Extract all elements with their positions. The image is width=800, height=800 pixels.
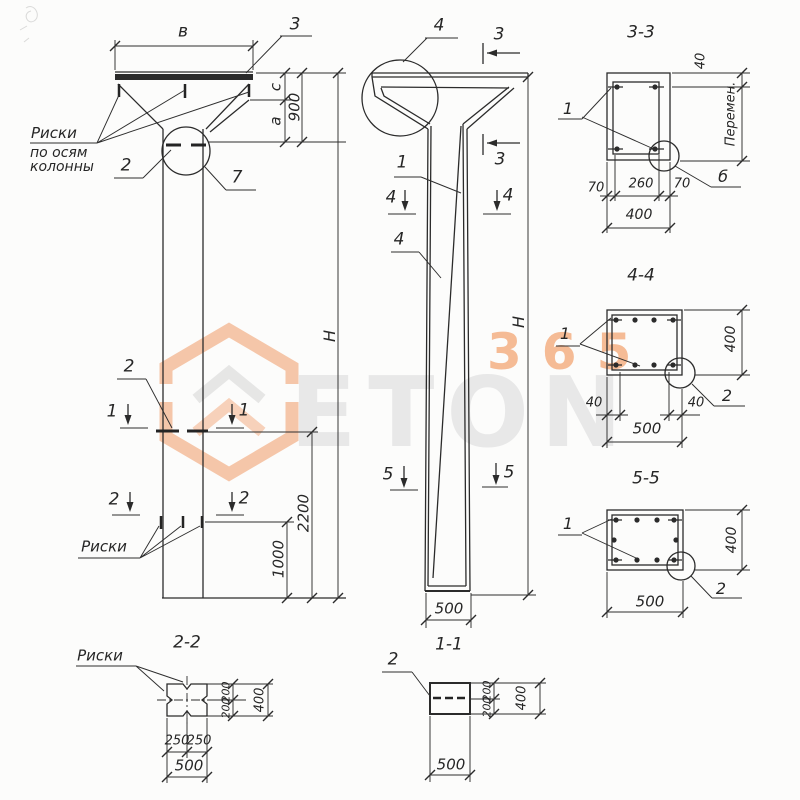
side-dim-H: Н <box>511 316 527 328</box>
side-callout-4-web: 4 <box>394 232 405 249</box>
sec22-dim-250-right: 250 <box>187 735 212 748</box>
front-callout-2-top: 2 <box>121 158 132 175</box>
sec44-callout-1: 1 <box>560 326 570 342</box>
sec44-callout-2: 2 <box>722 388 732 404</box>
side-elevation-view <box>362 38 536 628</box>
side-marker-5-left: 5 <box>383 467 394 484</box>
sec55-dim-500: 500 <box>636 595 665 610</box>
sec11-dim-200-bottom: 200 <box>482 697 493 718</box>
drawing-linework <box>0 0 800 800</box>
section-1-1-title: 1-1 <box>435 637 463 654</box>
sec33-dim-70-right: 70 <box>674 178 691 191</box>
sec33-dim-400: 400 <box>626 208 653 222</box>
section-2-2-title: 2-2 <box>173 635 201 652</box>
front-dim-c-label: с <box>269 83 284 91</box>
sec33-callout-6: б <box>718 169 728 185</box>
side-callout-4-top: 4 <box>434 18 445 35</box>
sec11-callout-2: 2 <box>388 652 399 669</box>
sec55-callout-1: 1 <box>563 516 573 532</box>
sec11-dim-500: 500 <box>437 758 466 773</box>
front-callout-3: 3 <box>290 17 301 34</box>
side-marker-5-right: 5 <box>504 465 515 482</box>
front-dim-H: Н <box>322 330 338 342</box>
side-marker-3-bottom: 3 <box>495 152 506 169</box>
sec33-dim-260: 260 <box>629 178 654 191</box>
front-axis-note-line1: Риски <box>31 126 77 141</box>
front-dim-900: 900 <box>288 93 303 122</box>
front-dim-2200: 2200 <box>297 494 312 532</box>
pencil-marks <box>20 7 37 42</box>
sec22-dim-200-bottom: 200 <box>221 698 232 719</box>
side-marker-3-top: 3 <box>494 27 505 44</box>
sec55-dim-400: 400 <box>725 527 739 554</box>
section-5-5-title: 5-5 <box>632 471 660 488</box>
drawing-sheet: ETON 365 <box>0 0 800 800</box>
section-3-3-view <box>558 73 750 233</box>
sec11-dim-400: 400 <box>516 686 529 711</box>
sec33-dim-70-left: 70 <box>588 182 605 195</box>
front-marker-2-right: 2 <box>239 491 250 508</box>
front-marker-2-left: 2 <box>109 492 120 509</box>
side-marker-4-right: 4 <box>503 188 514 205</box>
front-dim-b-label: в <box>178 24 188 41</box>
front-marker-1-right: 1 <box>239 403 250 420</box>
front-axis-note-line3: колонны <box>30 160 94 174</box>
front-marker-1-left: 1 <box>107 404 118 421</box>
sec44-dim-40-left: 40 <box>586 397 603 410</box>
sec44-dim-500: 500 <box>633 422 662 437</box>
side-dim-500: 500 <box>435 602 464 617</box>
front-dim-1000: 1000 <box>272 540 287 578</box>
sec22-risk-note: Риски <box>77 649 123 664</box>
front-callout-2-mid: 2 <box>124 359 135 376</box>
front-dim-a-label: а <box>269 116 284 125</box>
sec55-callout-2: 2 <box>716 581 726 597</box>
front-callout-7: 7 <box>232 170 243 187</box>
sec33-dim-variable: Перемен. <box>725 82 738 146</box>
sec44-dim-400: 400 <box>724 326 738 353</box>
front-risk-note: Риски <box>81 540 127 555</box>
front-axis-note-line2: по осям <box>30 146 87 160</box>
sec44-dim-40-right: 40 <box>688 397 705 410</box>
side-callout-1: 1 <box>397 155 408 172</box>
section-4-4-title: 4-4 <box>627 268 655 285</box>
section-3-3-title: 3-3 <box>627 25 655 42</box>
sec33-callout-1: 1 <box>563 101 573 117</box>
sec22-dim-400: 400 <box>254 688 267 713</box>
sec33-dim-40: 40 <box>695 53 708 70</box>
side-marker-4-left: 4 <box>386 190 397 207</box>
sec22-dim-500: 500 <box>175 759 204 774</box>
